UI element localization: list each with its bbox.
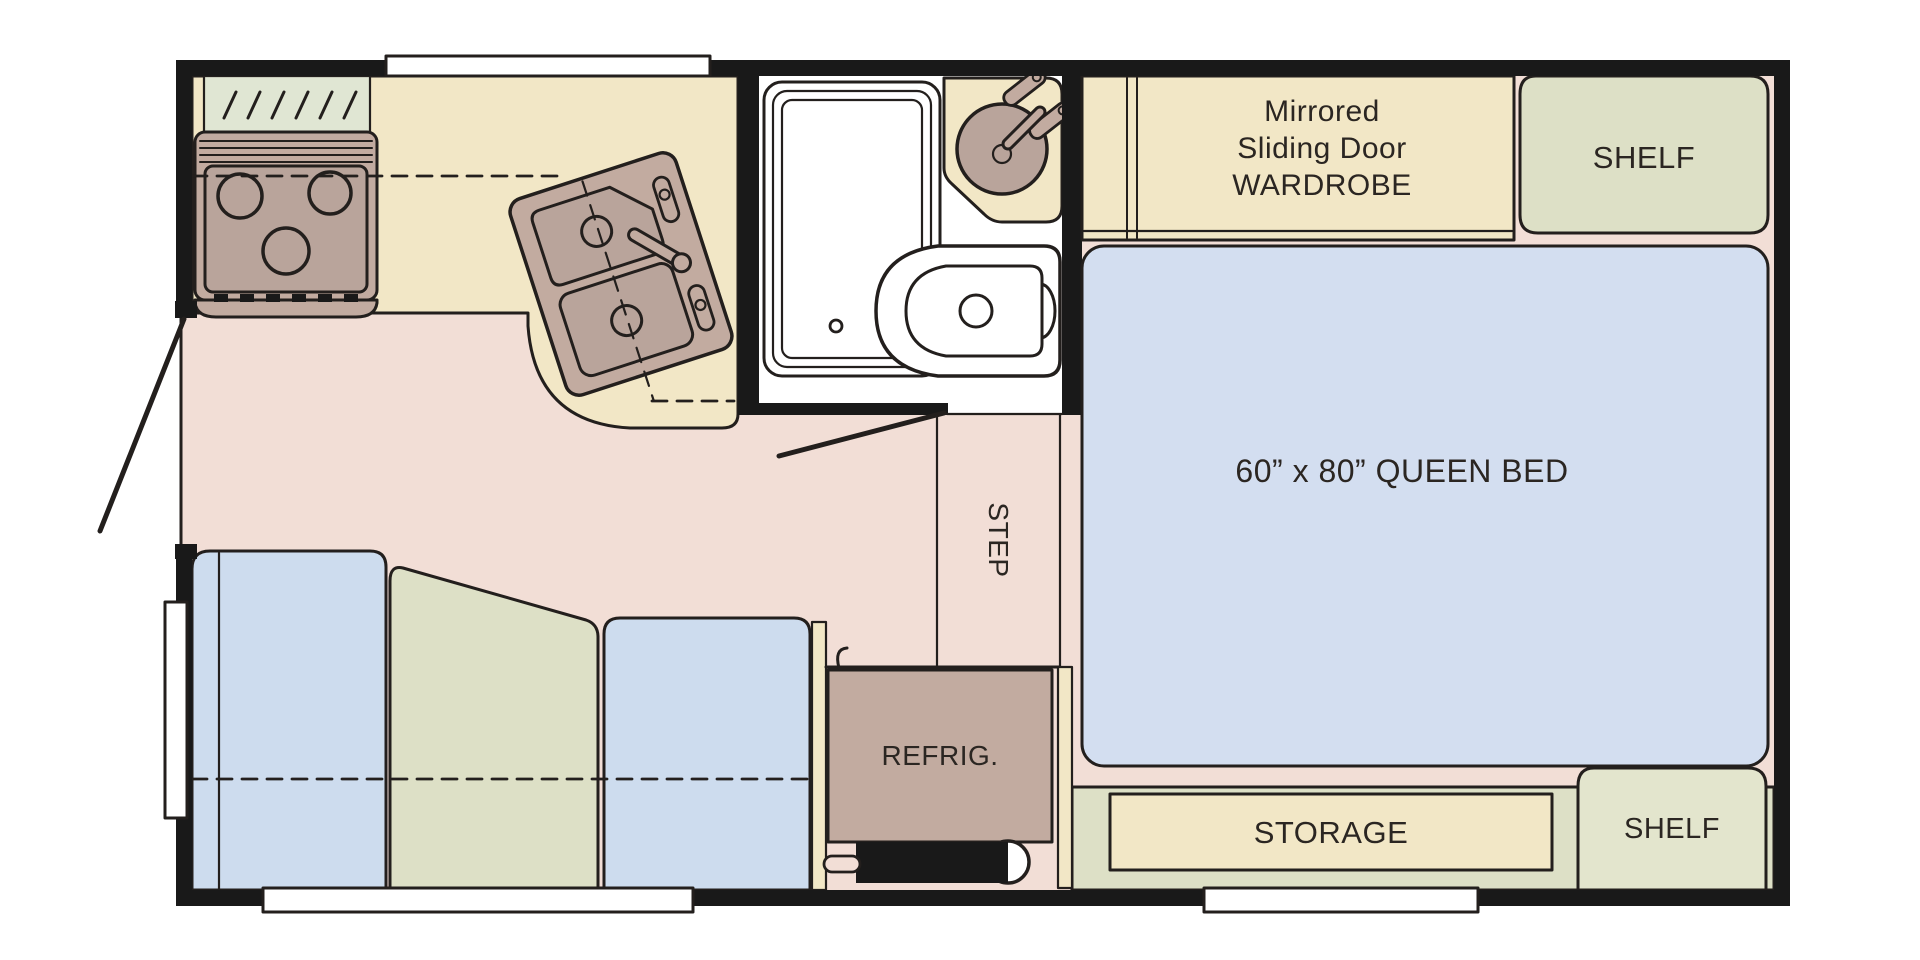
entry-mat bbox=[856, 842, 1008, 883]
toilet-flush bbox=[960, 295, 992, 327]
stove-burner bbox=[218, 174, 262, 218]
stove-scallop bbox=[344, 294, 358, 302]
stove-front-edge bbox=[195, 300, 377, 317]
dinette-table bbox=[390, 568, 598, 890]
window-left bbox=[165, 602, 187, 818]
queen-bed-label: 60” x 80” QUEEN BED bbox=[1235, 453, 1568, 489]
grab-pill bbox=[824, 856, 860, 872]
wall-stub bbox=[175, 544, 197, 559]
stove-scallop bbox=[214, 294, 228, 302]
door-opening-floor bbox=[181, 317, 194, 546]
stove-scallop bbox=[240, 294, 254, 302]
storage-label: STORAGE bbox=[1254, 815, 1409, 850]
step-label: STEP bbox=[983, 502, 1014, 577]
stove-scallop bbox=[292, 294, 306, 302]
cabinet-side-panel bbox=[812, 622, 826, 890]
stove-burner bbox=[263, 228, 309, 274]
floorplan: STEP Mirrored Sliding Door WARDROBE SHEL… bbox=[0, 0, 1920, 960]
stove-burner bbox=[309, 172, 351, 214]
dinette-seat-right bbox=[604, 618, 810, 890]
window-bottom-left bbox=[263, 888, 693, 912]
stove-scallop bbox=[266, 294, 280, 302]
dinette-seat-left bbox=[192, 551, 386, 890]
wall-kitchen-bath bbox=[738, 76, 759, 415]
queen-bed bbox=[1082, 246, 1768, 766]
toilet bbox=[876, 246, 1060, 376]
drainboard bbox=[204, 76, 370, 132]
wardrobe-label-line3: WARDROBE bbox=[1232, 169, 1412, 202]
window-top bbox=[386, 56, 710, 76]
wall-bath-bottom bbox=[738, 403, 948, 415]
window-bottom-right bbox=[1204, 888, 1478, 912]
stove bbox=[195, 132, 377, 317]
wall-bath-right bbox=[1062, 76, 1082, 415]
stove-scallop bbox=[318, 294, 332, 302]
wall-stub bbox=[175, 301, 197, 318]
wardrobe-label-line2: Sliding Door bbox=[1237, 132, 1406, 165]
wardrobe-label-line1: Mirrored bbox=[1264, 95, 1380, 128]
shelf-bottom-label: SHELF bbox=[1624, 813, 1720, 845]
cabinet-side-panel bbox=[1058, 667, 1072, 888]
refrigerator-label: REFRIG. bbox=[881, 740, 998, 771]
shelf-top-label: SHELF bbox=[1593, 140, 1695, 175]
